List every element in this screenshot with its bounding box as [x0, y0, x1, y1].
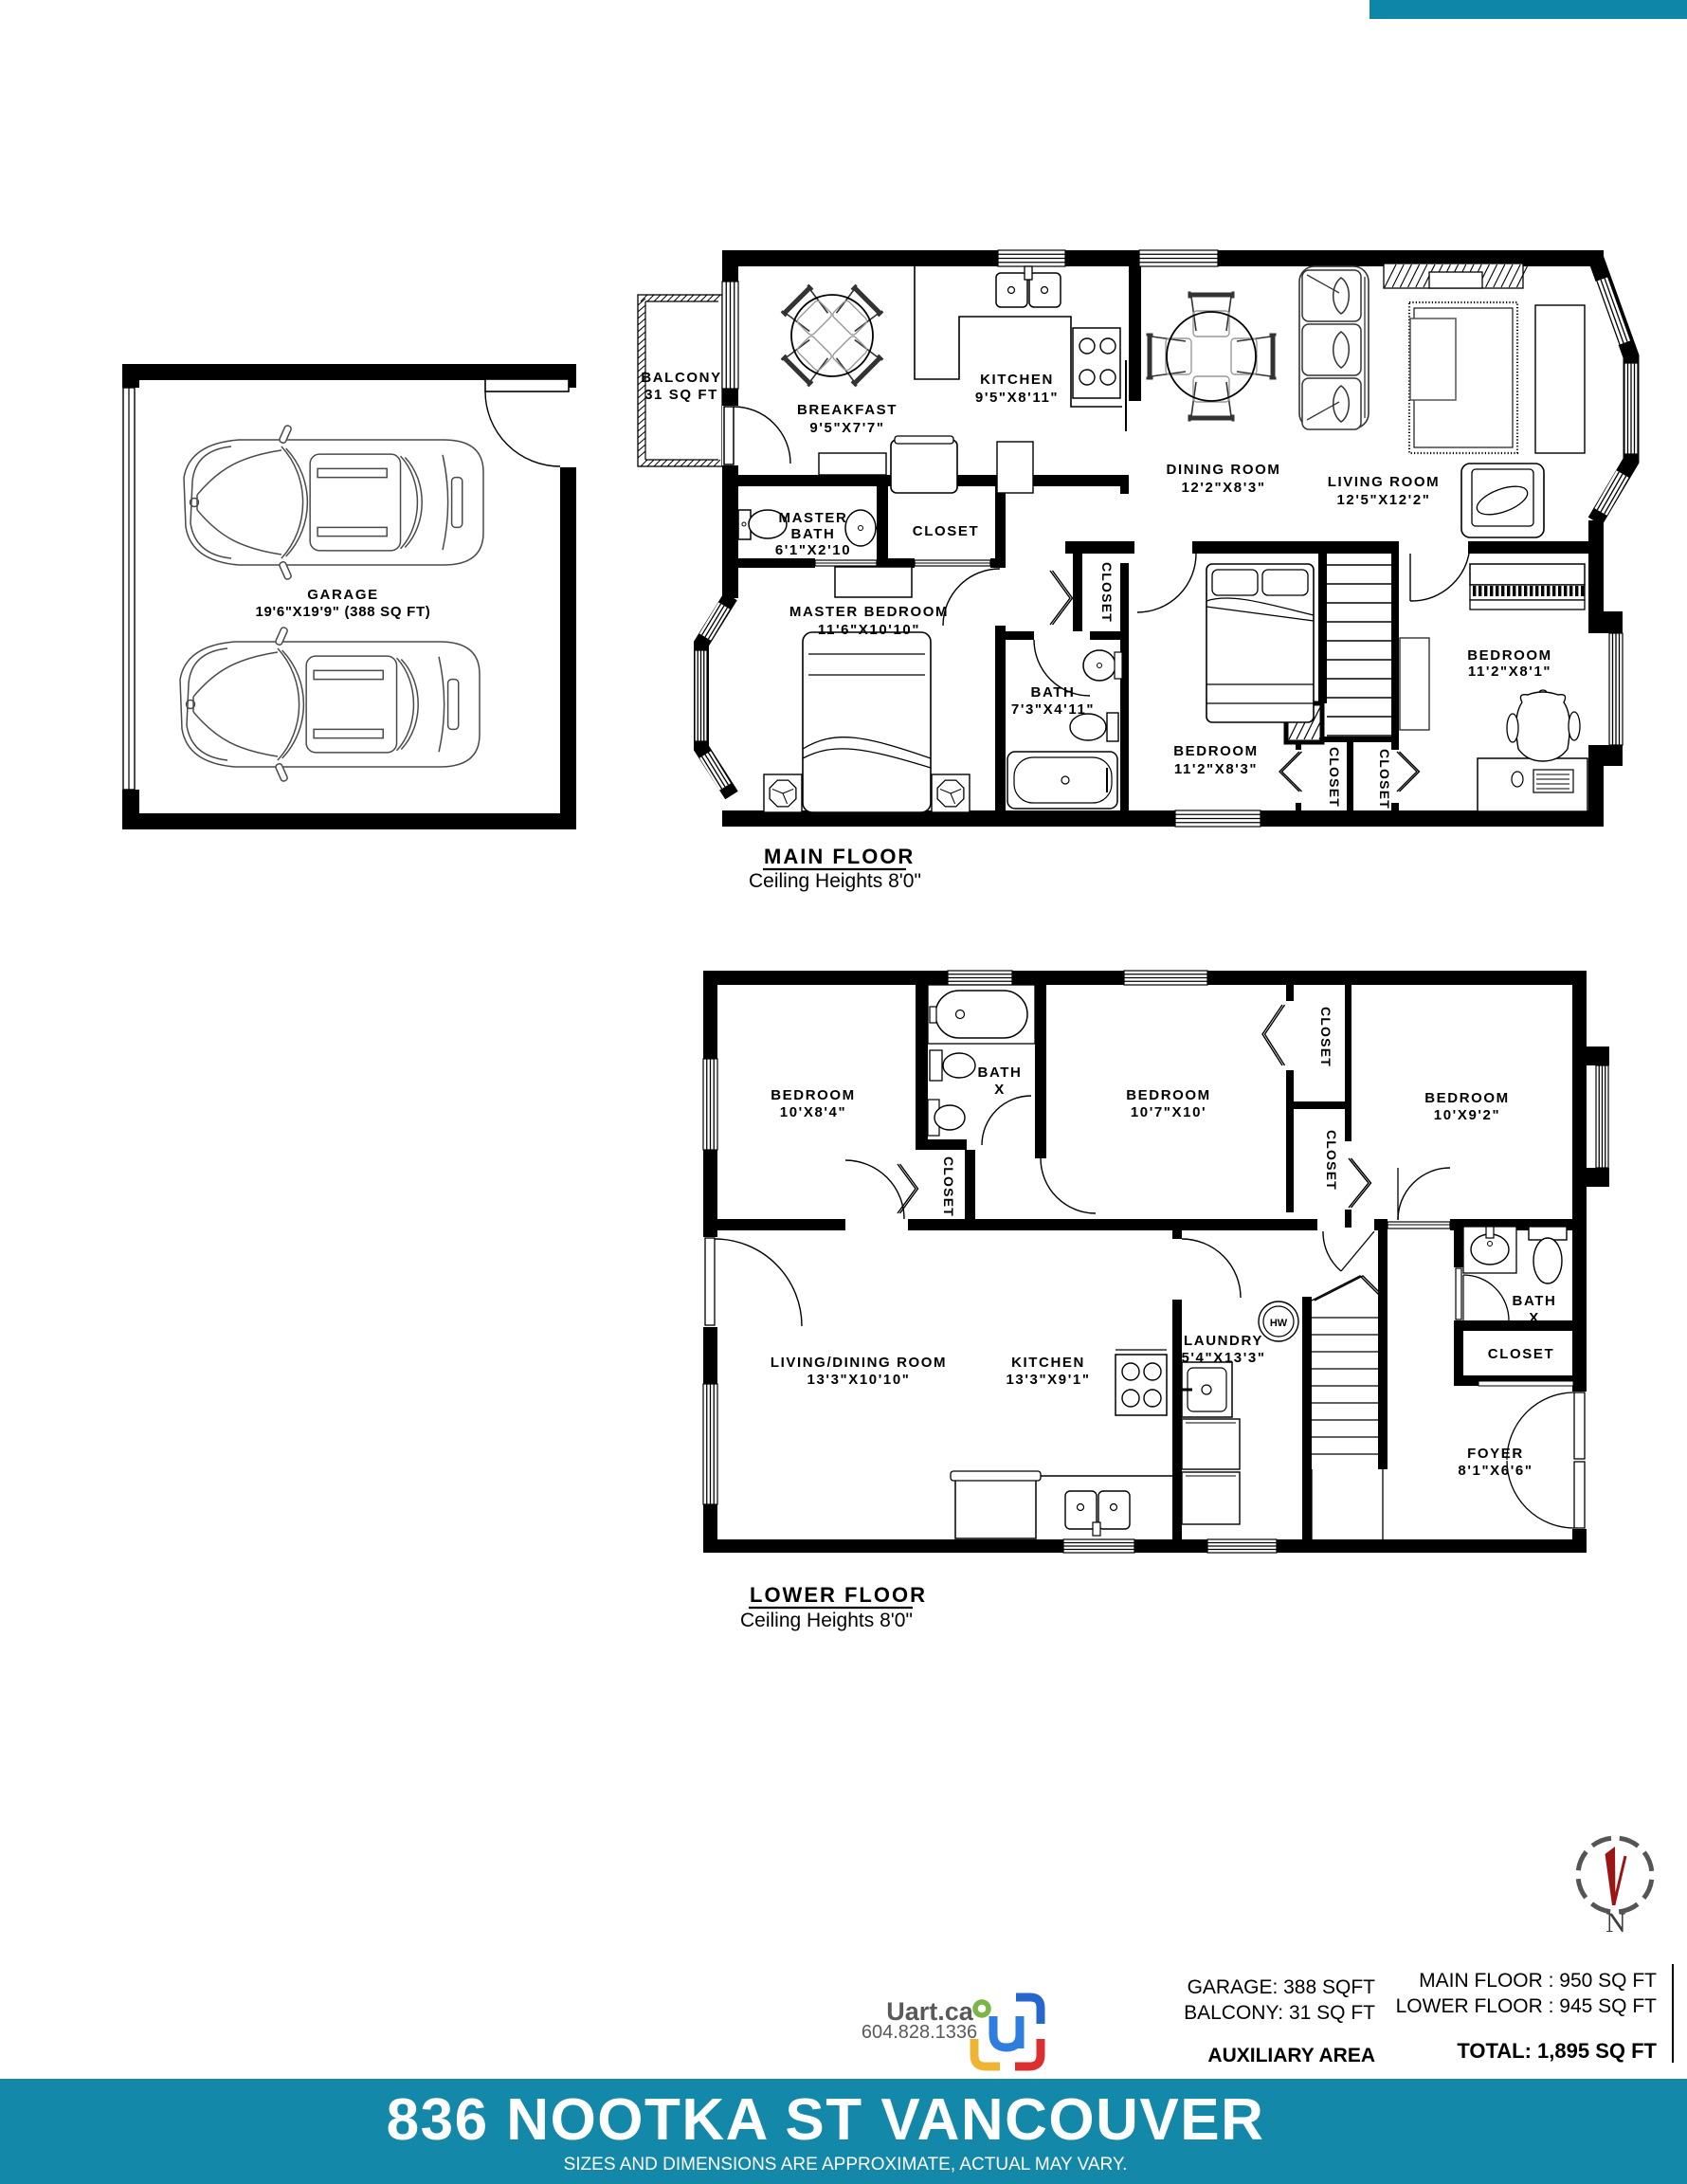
svg-text:BALCONY: BALCONY — [641, 370, 721, 386]
svg-text:604.828.1336: 604.828.1336 — [862, 2022, 977, 2043]
svg-text:LIVING/DINING ROOM: LIVING/DINING ROOM — [771, 1355, 947, 1371]
svg-text:LAUNDRY: LAUNDRY — [1184, 1333, 1263, 1349]
svg-text:MAIN FLOOR: MAIN FLOOR — [764, 845, 915, 868]
svg-text:CLOSET: CLOSET — [1377, 749, 1392, 810]
svg-text:CLOSET: CLOSET — [1324, 1130, 1339, 1191]
svg-text:GARAGE: GARAGE — [307, 587, 378, 603]
svg-text:BEDROOM: BEDROOM — [771, 1087, 856, 1103]
svg-text:KITCHEN: KITCHEN — [1011, 1355, 1085, 1371]
svg-text:CLOSET: CLOSET — [1488, 1346, 1554, 1362]
svg-text:10'7"X10': 10'7"X10' — [1131, 1104, 1206, 1120]
svg-text:12'2"X8'3": 12'2"X8'3" — [1181, 480, 1265, 496]
svg-text:BATH: BATH — [791, 526, 836, 542]
svg-text:10'X8'4": 10'X8'4" — [780, 1104, 846, 1120]
svg-text:31 SQ FT: 31 SQ FT — [644, 387, 718, 403]
svg-text:DINING ROOM: DINING ROOM — [1167, 462, 1281, 478]
svg-text:12'5"X12'2": 12'5"X12'2" — [1336, 492, 1430, 508]
svg-text:CLOSET: CLOSET — [1318, 1007, 1333, 1067]
svg-text:TOTAL: 1,895 SQ FT: TOTAL: 1,895 SQ FT — [1457, 2039, 1657, 2063]
svg-text:CLOSET: CLOSET — [1099, 562, 1115, 623]
svg-text:LIVING ROOM: LIVING ROOM — [1328, 474, 1440, 490]
svg-text:19'6"X19'9" (388 SQ FT): 19'6"X19'9" (388 SQ FT) — [255, 604, 430, 620]
svg-text:13'3"X10'10": 13'3"X10'10" — [807, 1372, 911, 1388]
svg-text:N: N — [1605, 1907, 1626, 1938]
svg-text:LOWER FLOOR : 945 SQ FT: LOWER FLOOR : 945 SQ FT — [1396, 1995, 1658, 2017]
svg-text:BEDROOM: BEDROOM — [1173, 743, 1259, 759]
svg-text:BEDROOM: BEDROOM — [1424, 1090, 1510, 1106]
svg-text:LOWER FLOOR: LOWER FLOOR — [750, 1583, 927, 1607]
svg-text:11'2"X8'1": 11'2"X8'1" — [1468, 664, 1551, 680]
svg-text:9'5"X8'11": 9'5"X8'11" — [975, 390, 1059, 406]
svg-text:836 NOOTKA ST VANCOUVER: 836 NOOTKA ST VANCOUVER — [387, 2087, 1265, 2153]
svg-text:Ceiling Heights 8'0": Ceiling Heights 8'0" — [749, 870, 921, 892]
svg-text:6'1"X2'10: 6'1"X2'10 — [775, 542, 851, 558]
svg-text:GARAGE: 388 SQFT: GARAGE: 388 SQFT — [1188, 1976, 1376, 1998]
svg-text:X: X — [994, 1082, 1006, 1098]
svg-text:BEDROOM: BEDROOM — [1126, 1087, 1211, 1103]
svg-text:CLOSET: CLOSET — [1327, 747, 1342, 808]
svg-text:MASTER BEDROOM: MASTER BEDROOM — [789, 604, 949, 620]
svg-text:11'2"X8'3": 11'2"X8'3" — [1174, 761, 1258, 777]
svg-text:KITCHEN: KITCHEN — [980, 372, 1054, 388]
svg-text:Ceiling Heights 8'0": Ceiling Heights 8'0" — [740, 1610, 913, 1631]
svg-text:MAIN FLOOR : 950 SQ FT: MAIN FLOOR : 950 SQ FT — [1419, 1970, 1657, 1992]
svg-text:BATH: BATH — [1031, 684, 1076, 701]
svg-text:13'3"X9'1": 13'3"X9'1" — [1006, 1372, 1090, 1388]
svg-text:10'X9'2": 10'X9'2" — [1434, 1107, 1500, 1123]
svg-text:CLOSET: CLOSET — [913, 523, 979, 539]
svg-text:FOYER: FOYER — [1467, 1446, 1524, 1462]
svg-text:9'5"X7'7": 9'5"X7'7" — [809, 420, 884, 436]
svg-text:BALCONY: 31 SQ FT: BALCONY: 31 SQ FT — [1184, 2002, 1375, 2024]
svg-text:X: X — [1529, 1310, 1540, 1326]
svg-text:CLOSET: CLOSET — [941, 1156, 956, 1217]
svg-text:7'3"X4'11": 7'3"X4'11" — [1011, 701, 1095, 718]
svg-text:BEDROOM: BEDROOM — [1467, 647, 1552, 664]
svg-text:HW: HW — [1270, 1318, 1288, 1329]
svg-text:SIZES AND DIMENSIONS ARE APPRO: SIZES AND DIMENSIONS ARE APPROXIMATE, AC… — [564, 2155, 1128, 2175]
svg-text:BATH: BATH — [978, 1065, 1023, 1081]
svg-text:BREAKFAST: BREAKFAST — [797, 402, 898, 418]
svg-text:11'6"X10'10": 11'6"X10'10" — [818, 622, 920, 638]
svg-text:BATH: BATH — [1513, 1293, 1557, 1309]
svg-text:AUXILIARY AREA: AUXILIARY AREA — [1207, 2045, 1375, 2066]
svg-text:8'1"X6'6": 8'1"X6'6" — [1458, 1463, 1533, 1479]
svg-text:MASTER: MASTER — [779, 510, 848, 526]
